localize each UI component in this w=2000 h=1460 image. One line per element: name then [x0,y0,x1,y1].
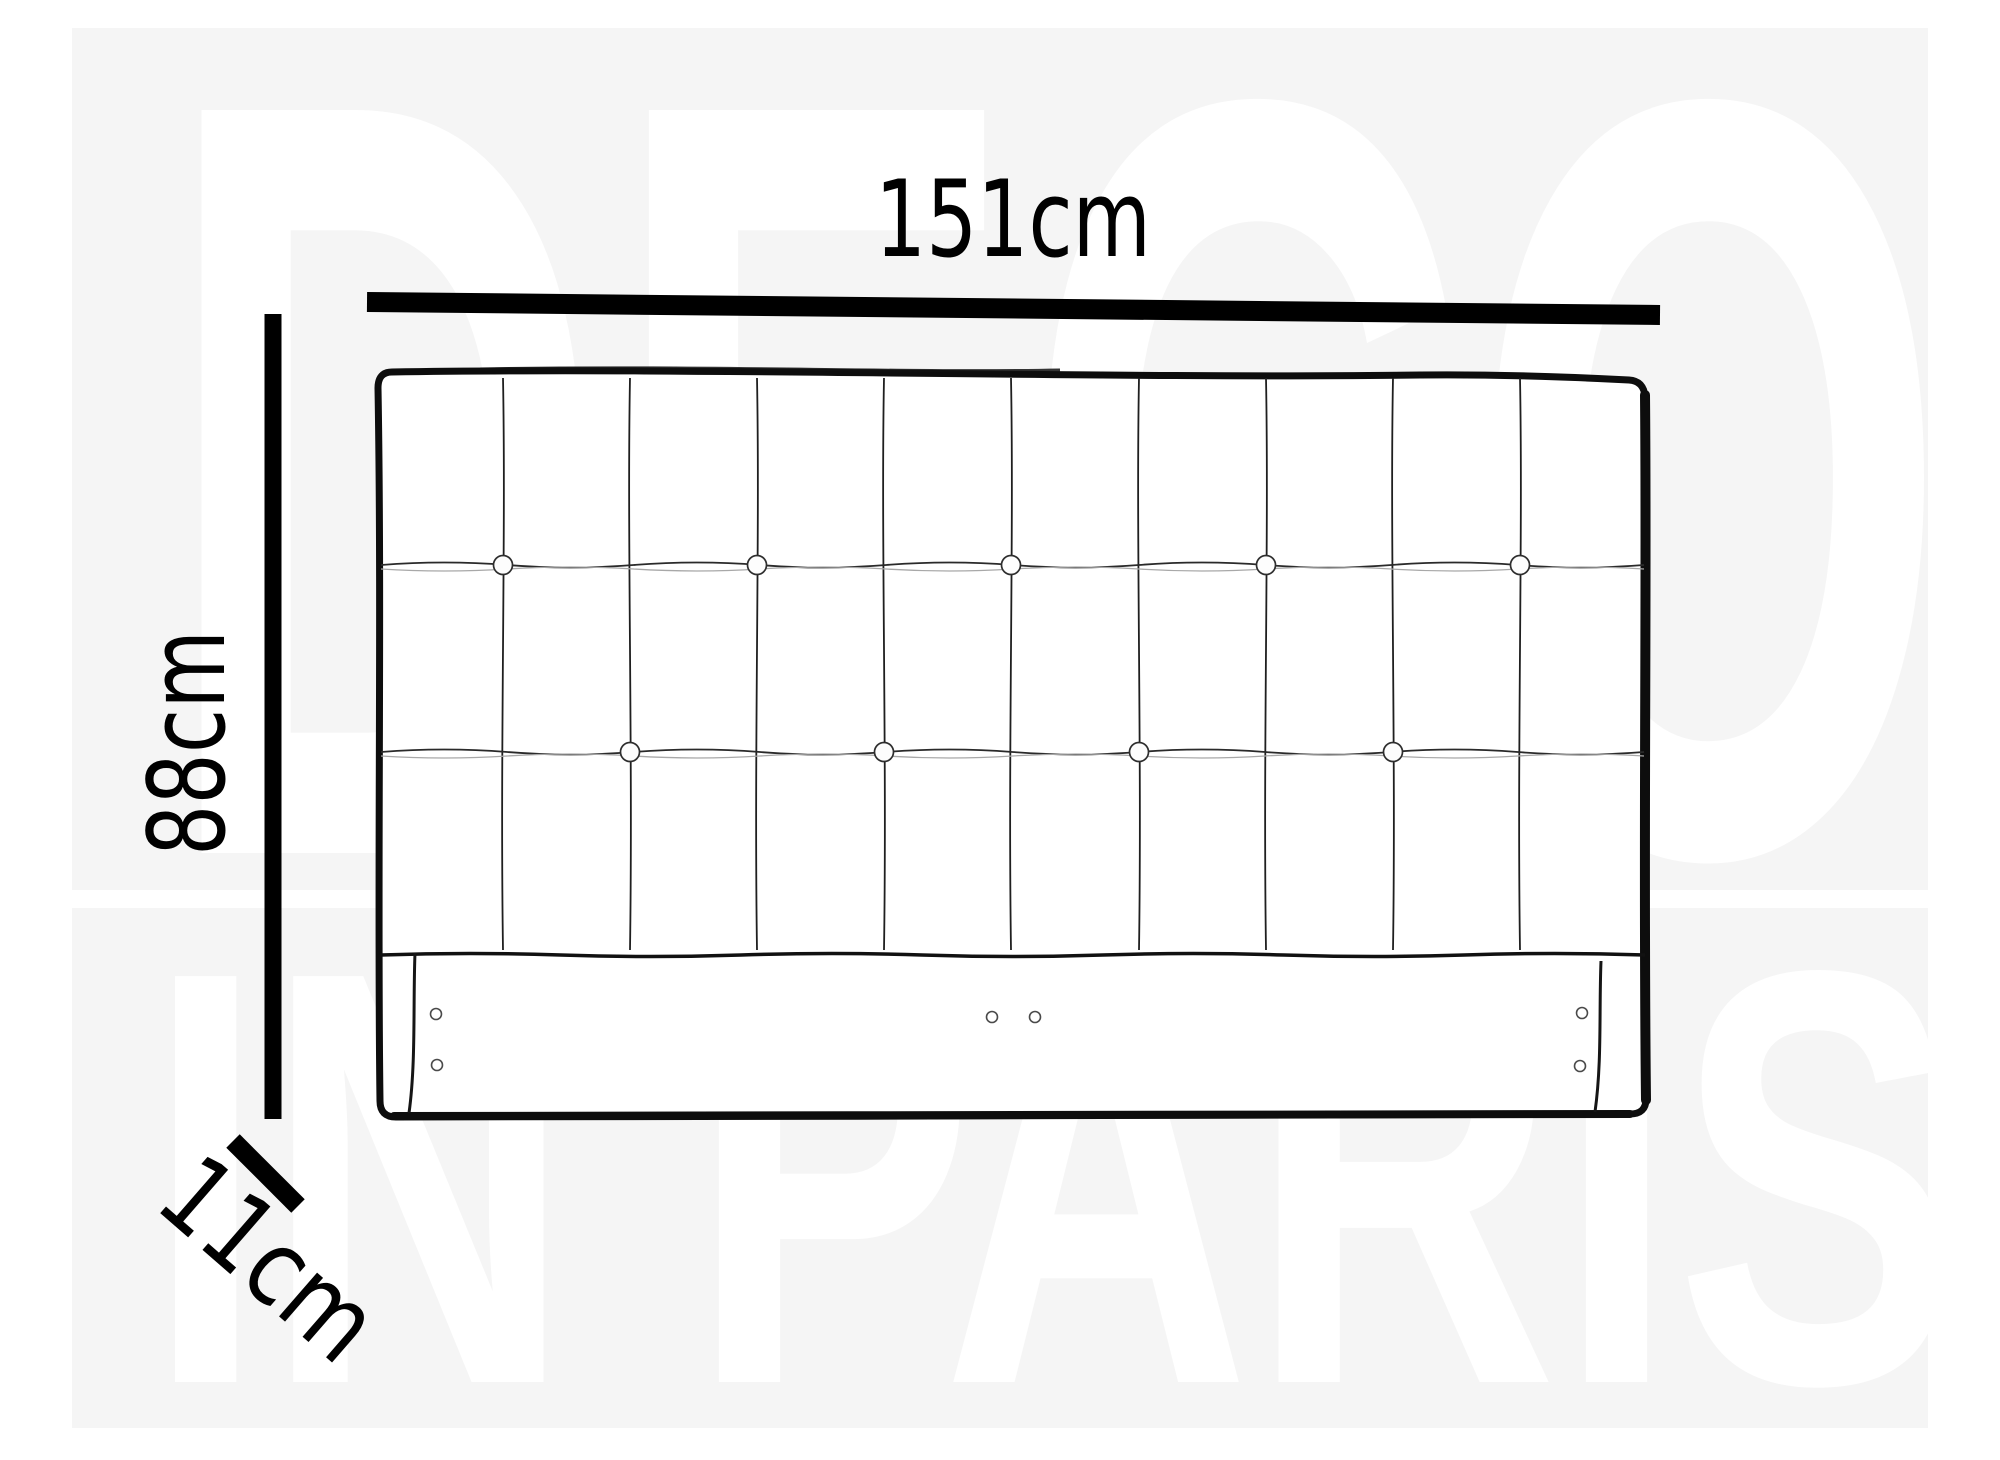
screw-hole [432,1060,443,1071]
screw-hole [987,1012,998,1023]
height-dimension-label: 88cm [126,630,249,856]
screw-hole [1575,1061,1586,1072]
tuft-button [875,743,894,762]
width-dimension-label: 151cm [875,158,1151,281]
tuft-button [748,556,767,575]
screw-hole [1577,1008,1588,1019]
dimension-diagram-page: DECO IN PARIS 151cm 88cm [0,0,2000,1460]
tuft-button [1257,556,1276,575]
width-dimension-line [367,302,1660,315]
tuft-button [1511,556,1530,575]
tuft-button [1384,743,1403,762]
tuft-button [621,743,640,762]
headboard-bottom-edge [394,1114,1630,1116]
screw-hole [431,1009,442,1020]
headboard-dimension-figure: DECO IN PARIS 151cm 88cm [0,0,2000,1460]
tuft-button [1002,556,1021,575]
screw-hole [1030,1012,1041,1023]
tuft-button [1130,743,1149,762]
headboard-right-edge [1645,395,1646,1100]
tuft-button [494,556,513,575]
headboard-drawing [378,368,1646,1117]
